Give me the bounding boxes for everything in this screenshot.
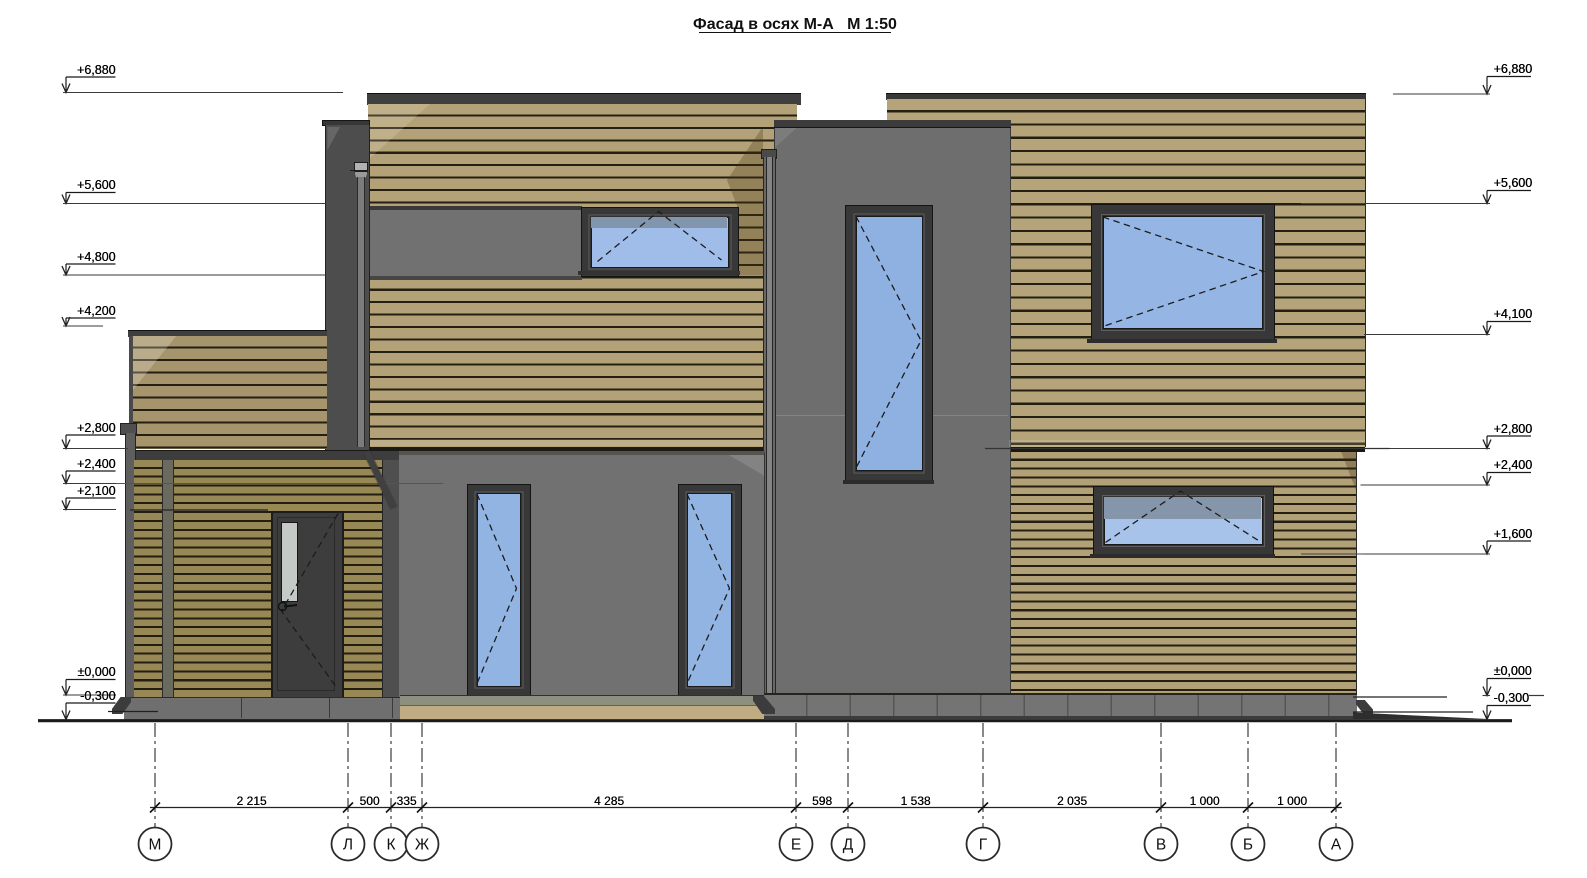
svg-text:А: А (1331, 837, 1342, 854)
svg-text:Б: Б (1243, 837, 1253, 854)
svg-text:Г: Г (979, 837, 988, 854)
svg-text:М: М (149, 837, 162, 854)
svg-text:Д: Д (843, 837, 854, 854)
svg-text:Е: Е (791, 837, 801, 854)
svg-text:В: В (1156, 837, 1166, 854)
svg-text:К: К (386, 837, 395, 854)
svg-text:Ж: Ж (415, 837, 430, 854)
svg-text:Л: Л (343, 837, 353, 854)
